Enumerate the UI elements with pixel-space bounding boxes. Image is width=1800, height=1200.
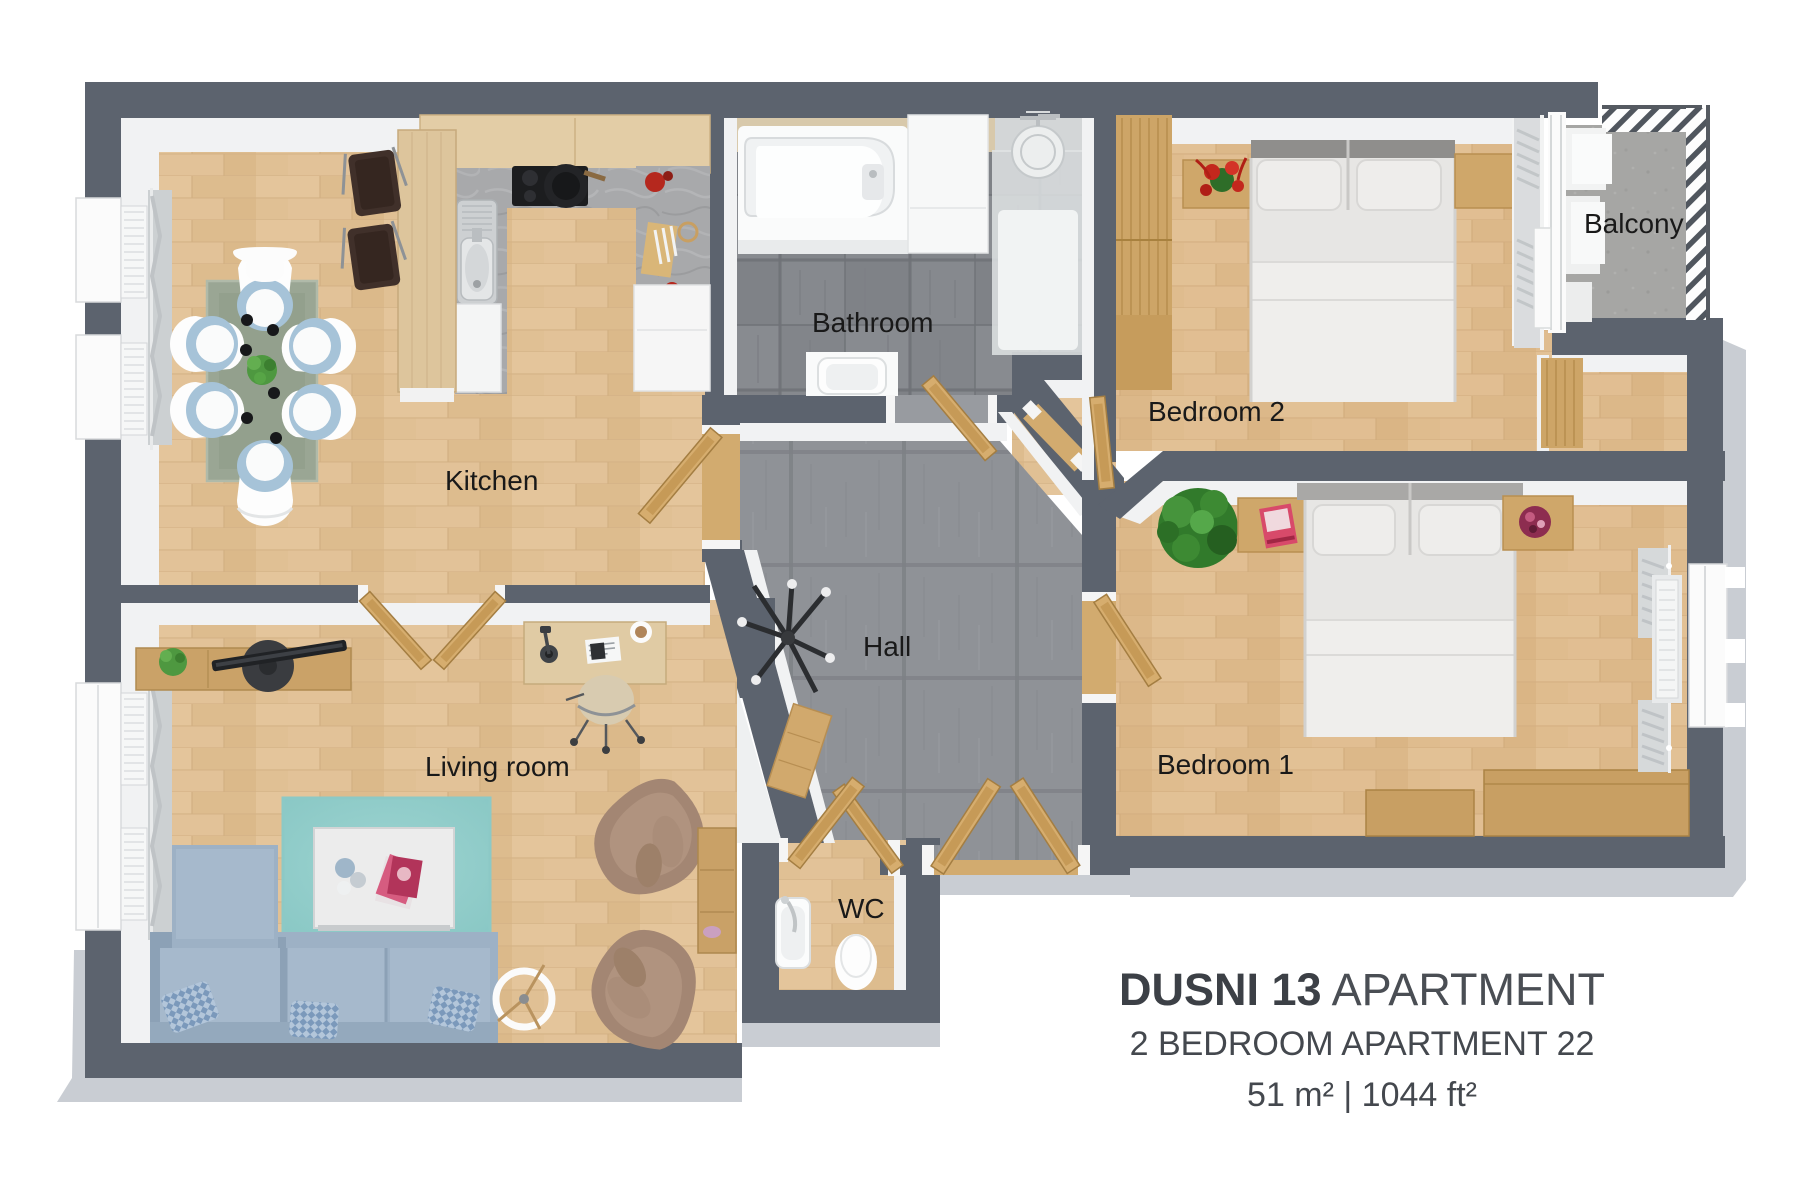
svg-text:Hall: Hall [863, 631, 911, 662]
svg-text:51 m² | 1044 ft²: 51 m² | 1044 ft² [1247, 1076, 1477, 1114]
svg-text:2 BEDROOM APARTMENT 22: 2 BEDROOM APARTMENT 22 [1130, 1025, 1595, 1063]
svg-text:Living room: Living room [425, 751, 570, 782]
svg-text:Bedroom 2: Bedroom 2 [1148, 396, 1285, 427]
svg-text:WC: WC [838, 893, 885, 924]
svg-text:Bathroom: Bathroom [812, 307, 933, 338]
svg-text:DUSNI 13 APARTMENT: DUSNI 13 APARTMENT [1119, 964, 1605, 1015]
svg-text:Bedroom 1: Bedroom 1 [1157, 749, 1294, 780]
svg-text:Kitchen: Kitchen [445, 465, 538, 496]
svg-text:Balcony: Balcony [1584, 208, 1684, 239]
